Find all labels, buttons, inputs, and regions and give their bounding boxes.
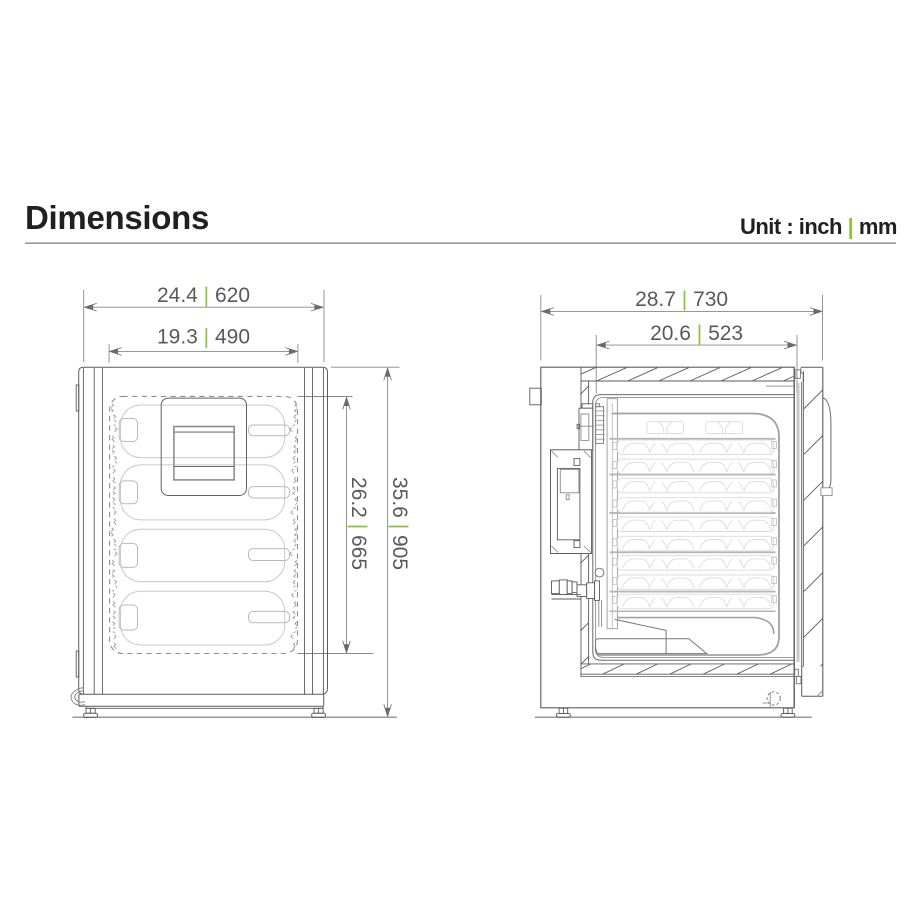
svg-text:20.6 | 523: 20.6 | 523 (650, 322, 743, 345)
svg-text:28.7 | 730: 28.7 | 730 (635, 288, 728, 311)
svg-text:19.3 | 490: 19.3 | 490 (157, 326, 250, 349)
svg-text:24.4 | 620: 24.4 | 620 (157, 284, 250, 307)
svg-text:35.6 | 905: 35.6 | 905 (388, 477, 411, 570)
svg-text:Dimensions: Dimensions (25, 199, 209, 236)
svg-text:26.2 | 665: 26.2 | 665 (347, 477, 370, 570)
svg-text:Unit : inch | mm: Unit : inch | mm (740, 214, 897, 239)
